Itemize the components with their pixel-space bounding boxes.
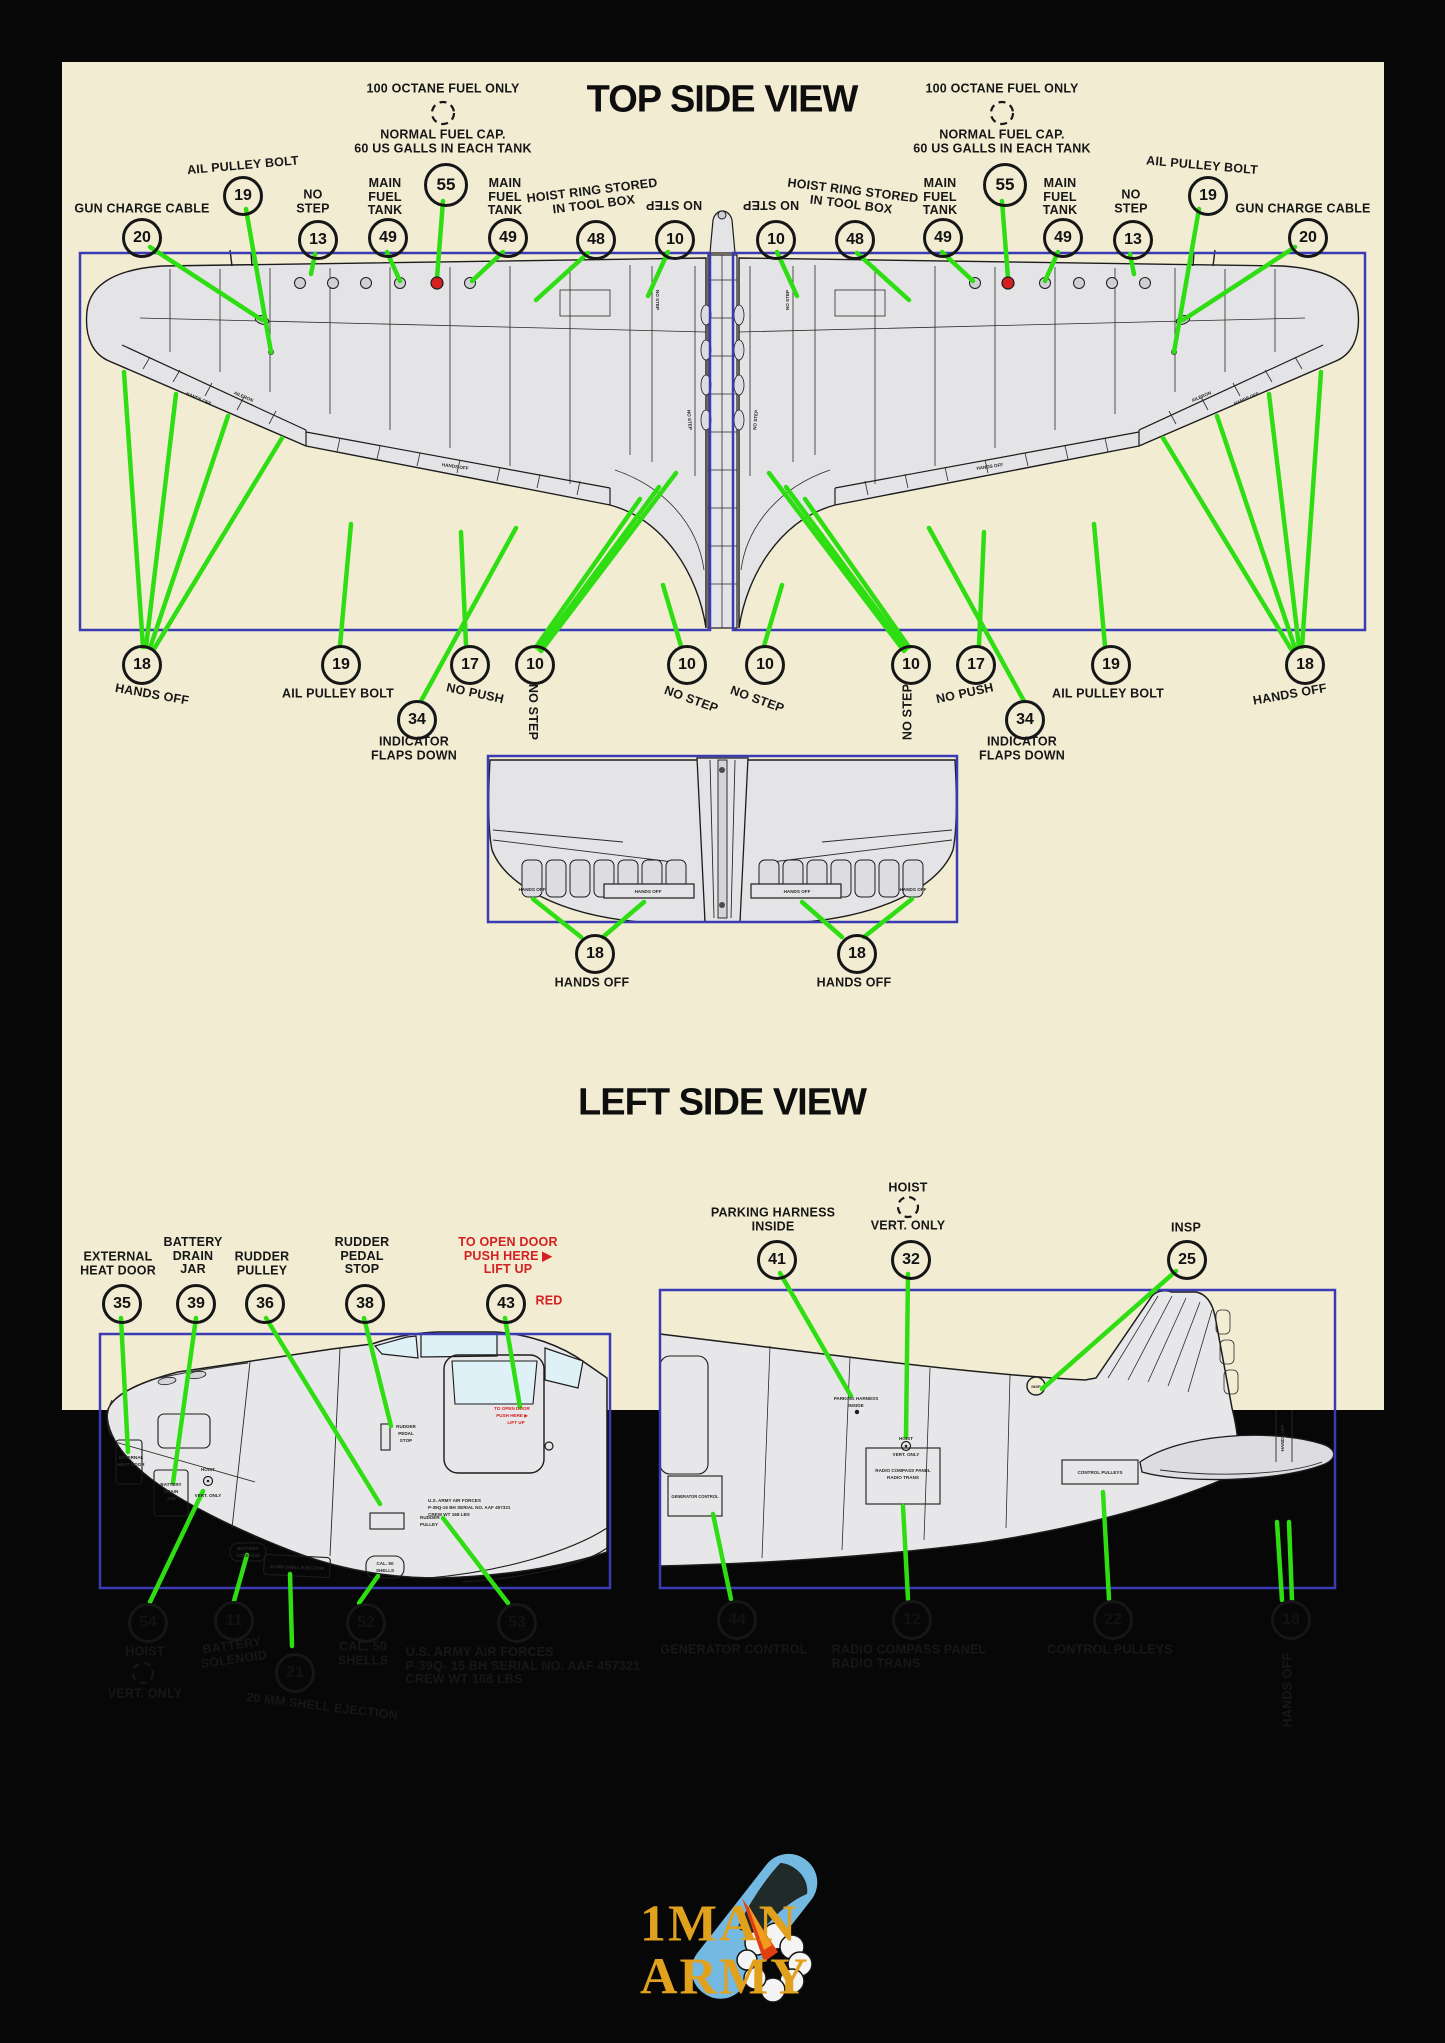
diagram-art: HANDS OFFAILERONHANDS OFFNO STEPNO STEPH… [0,0,1445,2043]
micro-label: SOLENOID [236,1553,261,1558]
callout-number-32: 32 [891,1240,931,1280]
callout-number-39: 39 [176,1284,216,1324]
leader-line [150,1491,203,1602]
callout-label: MAIN FUEL TANK [1043,177,1078,218]
callout-number-19: 19 [223,176,263,216]
micro-label: CAL. 50 [376,1561,394,1566]
callout-label: RUDDER PULLEY [235,1251,290,1278]
micro-label: DRAIN [164,1489,179,1494]
micro-label: HANDS OFF [635,889,662,894]
top-view-right-wing-drawing [739,250,1358,628]
dashed-circle-marker [991,102,1013,124]
callout-number-36: 36 [245,1284,285,1324]
callout-label: AIL PULLEY BOLT [282,687,394,701]
callout-label: CAL. 50 SHELLS [338,1641,389,1668]
leader-line [906,1274,908,1437]
callout-label: 100 OCTANE FUEL ONLY [925,82,1078,96]
top-view-left-wing-drawing [87,250,706,628]
callout-label: HOIST [125,1645,164,1659]
micro-label: HANDS OFF [784,889,811,894]
top-view-fuselage-strip [701,211,744,628]
callout-number-17: 17 [956,645,996,685]
callout-label: NO STEP [901,684,915,740]
callout-number-48: 48 [576,220,616,260]
callout-label: PARKING HARNESS INSIDE [711,1207,835,1234]
callout-label: TO OPEN DOOR PUSH HERE ▶ LIFT UP [458,1236,557,1277]
micro-label: HOIST [201,1467,215,1472]
callout-number-18: 18 [837,934,877,974]
micro-label: PUSH HERE ▶ [496,1413,529,1418]
callout-number-49: 49 [923,218,963,258]
callout-label: MAIN FUEL TANK [368,177,403,218]
leader-line [805,499,909,647]
callout-number-34: 34 [1005,700,1045,740]
callout-label: BATTERY DRAIN JAR [163,1236,222,1277]
callout-label: RADIO COMPASS PANEL RADIO TRANS [832,1644,987,1671]
callout-number-19: 19 [1091,645,1131,685]
fuel-cap-marker [1002,277,1014,289]
callout-label: U.S. ARMY AIR FORCES P-39Q- 15 BH SERIAL… [406,1646,641,1687]
callout-label: AIL PULLEY BOLT [1052,687,1164,701]
callout-number-10: 10 [515,645,555,685]
leader-line [1302,372,1321,647]
callout-number-48: 48 [835,220,875,260]
callout-label: MAIN FUEL TANK [488,177,523,218]
micro-label: HANDS OFF [519,887,546,892]
callout-label: NO STEP [1114,189,1147,216]
callout-label: NO STEP [525,684,539,740]
micro-label: RADIO COMPASS PANEL [875,1468,931,1473]
callout-number-12: 12 [892,1600,932,1640]
callout-number-13: 13 [1113,220,1153,260]
micro-label: NO STEP [785,290,790,310]
micro-label: SHELLS [376,1568,394,1573]
callout-label: RED [536,1294,563,1308]
poster-page: HANDS OFFAILERONHANDS OFFNO STEPNO STEPH… [0,0,1445,2043]
callout-label: MAIN FUEL TANK [923,177,958,218]
callout-number-43: 43 [486,1284,526,1324]
leader-line [1289,1522,1292,1600]
callout-number-49: 49 [368,218,408,258]
micro-label: U.S. ARMY AIR FORCES [428,1498,481,1503]
callout-number-18: 18 [1285,645,1325,685]
callout-number-18: 18 [575,934,615,974]
micro-label: HEAT DOOR [117,1462,145,1467]
leader-line [786,487,906,649]
micro-label: HOIST [899,1436,913,1441]
leader-line [539,487,659,649]
micro-label: BATTERY [160,1482,181,1487]
callout-number-17: 17 [450,645,490,685]
callout-label: CONTROL PULLEYS [1047,1643,1173,1657]
micro-label: 20 MM SHELL EJECTION [270,1564,325,1571]
micro-label: PEDAL [398,1431,414,1436]
callout-number-55: 55 [983,163,1027,207]
left-view-tail-drawing [660,1291,1334,1566]
leader-line [234,1555,247,1601]
callout-number-18: 18 [1271,1600,1311,1640]
callout-number-10: 10 [756,220,796,260]
callout-label: RUDDER PEDAL STOP [335,1236,390,1277]
callout-number-49: 49 [488,218,528,258]
micro-label: LIFT UP [507,1420,524,1425]
callout-number-55: 55 [424,163,468,207]
micro-label: PULLEY [420,1522,438,1527]
callout-number-10: 10 [655,220,695,260]
callout-label: HANDS OFF [1281,1653,1295,1728]
callout-number-11: 11 [214,1601,254,1641]
callout-number-10: 10 [745,645,785,685]
callout-number-25: 25 [1167,1240,1207,1280]
callout-number-35: 35 [102,1284,142,1324]
callout-number-34: 34 [397,700,437,740]
micro-label: RADIO TRANS [887,1475,919,1480]
leader-line [154,438,282,649]
callout-label: GUN CHARGE CABLE [74,202,209,216]
micro-label: INSIDE [848,1403,863,1408]
micro-label: VERT. ONLY [195,1493,222,1498]
callout-label: HANDS OFF [817,976,892,990]
micro-label: RUDDER [420,1515,440,1520]
micro-label: JAR [166,1496,176,1501]
leader-line [764,585,782,646]
callout-label: HOIST [888,1181,927,1195]
logo-word-1: 1MAN [640,1895,798,1954]
micro-label: STOP [400,1438,412,1443]
callout-number-21: 21 [275,1653,315,1693]
callout-number-10: 10 [891,645,931,685]
callout-number-19: 19 [321,645,361,685]
callout-number-22: 22 [1093,1600,1133,1640]
micro-label: GENERATOR CONTROL [671,1494,719,1499]
leader-line [124,372,143,647]
callout-number-20: 20 [1288,218,1328,258]
leader-line [1094,524,1105,646]
callout-number-44: 44 [717,1600,757,1640]
callout-number-38: 38 [345,1284,385,1324]
micro-label: NO STEP [655,290,660,310]
micro-label: PARKING HARNESS [834,1396,879,1401]
micro-label: TO OPEN DOOR [494,1406,530,1411]
micro-label: BATTERY [237,1546,258,1551]
callout-label: NORMAL FUEL CAP. 60 US GALLS IN EACH TAN… [354,129,532,156]
leader-line [359,1576,378,1603]
callout-number-41: 41 [757,1240,797,1280]
micro-label: EXTERNAL [119,1455,144,1460]
callout-label: EXTERNAL HEAT DOOR [80,1251,156,1278]
callout-number-19: 19 [1188,176,1228,216]
callout-number-20: 20 [122,218,162,258]
dashed-circle-marker [898,1197,918,1217]
callout-label: 100 OCTANE FUEL ONLY [366,82,519,96]
callout-number-10: 10 [667,645,707,685]
micro-label: INSP [1031,1384,1041,1389]
micro-label: P-39Q-15 BH SERIAL NO. AAF 457321 [428,1505,511,1510]
callout-label: NO STEP [646,197,702,211]
callout-label: HANDS OFF [555,976,630,990]
micro-label: RUDDER [396,1424,416,1429]
callout-label: VERT. ONLY [108,1687,182,1701]
callout-label: GENERATOR CONTROL [660,1643,807,1657]
callout-label: VERT. ONLY [871,1219,945,1233]
leader-line [340,524,351,646]
callout-number-53: 53 [497,1603,537,1643]
callout-number-18: 18 [122,645,162,685]
callout-number-49: 49 [1043,218,1083,258]
dashed-circle-marker [133,1663,153,1683]
left-view-nose-drawing [107,1332,607,1582]
callout-label: GUN CHARGE CABLE [1235,202,1370,216]
callout-number-54: 54 [128,1603,168,1643]
micro-label: VERT. ONLY [893,1452,920,1457]
leader-line [1163,438,1291,649]
callout-label: NO STEP [296,189,329,216]
logo-word-2: ARMY [640,1948,810,2007]
micro-label: CONTROL PULLEYS [1077,1470,1122,1475]
leader-line [290,1574,292,1646]
top-view-title: TOP SIDE VIEW [587,79,858,122]
callout-number-52: 52 [346,1603,386,1643]
leader-line [663,585,681,646]
flaps-view-drawing [489,758,957,922]
callout-label: NORMAL FUEL CAP. 60 US GALLS IN EACH TAN… [913,129,1091,156]
dashed-circle-marker [432,102,454,124]
callout-label: INSP [1171,1221,1201,1235]
left-view-title: LEFT SIDE VIEW [578,1082,866,1125]
fuel-cap-marker [431,277,443,289]
callout-label: NO STEP [743,197,799,211]
leader-line [536,499,640,647]
micro-label: HANDS OFF [1280,1424,1285,1451]
micro-label: HANDS OFF [900,887,927,892]
callout-number-13: 13 [298,220,338,260]
